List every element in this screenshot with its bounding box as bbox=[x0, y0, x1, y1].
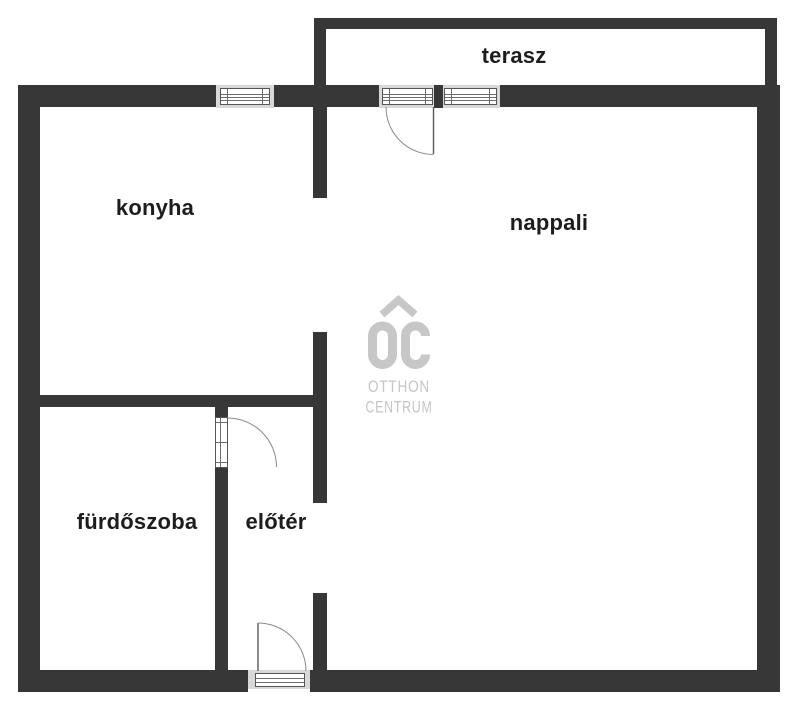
watermark-c-glyph bbox=[406, 326, 426, 364]
watermark-line2: CENTRUM bbox=[366, 398, 433, 417]
watermark-o-glyph bbox=[373, 326, 393, 365]
room-label-terasz: terasz bbox=[482, 43, 547, 69]
room-label-furdoszoba: fürdőszoba bbox=[77, 509, 198, 535]
bathroom-door-arc bbox=[228, 418, 277, 467]
room-label-nappali: nappali bbox=[510, 210, 588, 236]
room-label-konyha: konyha bbox=[116, 195, 194, 221]
room-label-eloter: előtér bbox=[245, 509, 306, 535]
watermark-logo: OTTHON CENTRUM bbox=[366, 300, 433, 417]
fixtures-overlay: OTTHON CENTRUM bbox=[0, 0, 800, 712]
entrance-door-arc bbox=[258, 623, 306, 671]
balcony-door-arc bbox=[386, 107, 434, 155]
watermark-roof-icon bbox=[382, 300, 415, 315]
watermark-line1: OTTHON bbox=[368, 377, 430, 396]
floorplan: OTTHON CENTRUM terasz konyha nappali für… bbox=[0, 0, 800, 712]
